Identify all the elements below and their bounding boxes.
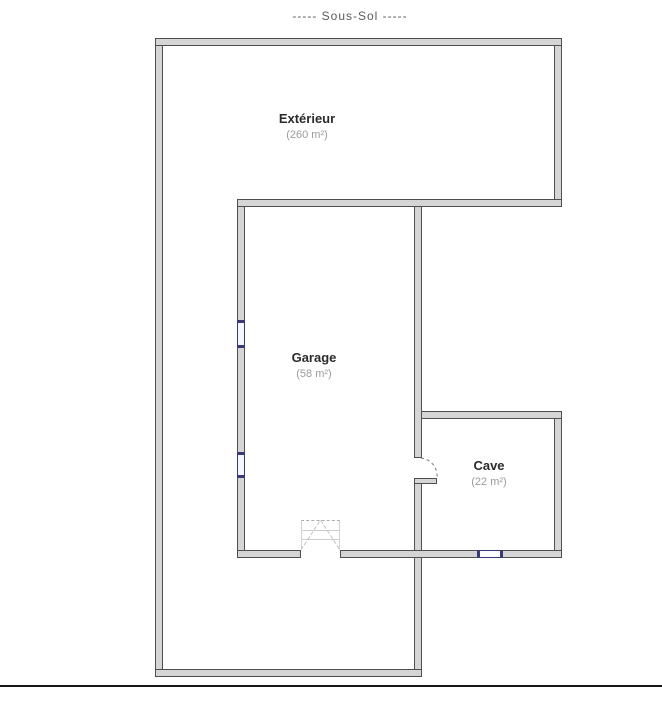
cave-wall-right [554, 411, 562, 558]
room-name-exterieur: Extérieur [247, 112, 367, 127]
room-area-garage: (58 m²) [254, 368, 374, 380]
garage-window-upper [237, 320, 245, 348]
cave-top-wall [421, 411, 562, 419]
garage-wall-right-lower [414, 481, 422, 677]
outer-wall-top [155, 38, 562, 46]
room-area-cave: (22 m²) [429, 476, 549, 488]
room-name-garage: Garage [254, 351, 374, 366]
cave-window [477, 550, 503, 558]
room-label-cave: Cave (22 m²) [429, 459, 549, 488]
room-name-cave: Cave [429, 459, 549, 474]
garage-bottom-wall-left [237, 550, 301, 558]
garage-wall-left [237, 199, 245, 558]
outer-wall-left [155, 38, 163, 677]
room-label-garage: Garage (58 m²) [254, 351, 374, 380]
floor-plan: ----- Sous-Sol ----- Extérieur (260 m²) … [0, 0, 662, 723]
room-label-exterieur: Extérieur (260 m²) [247, 112, 367, 141]
garage-top-wall [237, 199, 562, 207]
outer-wall-right-upper [554, 38, 562, 207]
outer-wall-bottom [155, 669, 422, 677]
plan-title: ----- Sous-Sol ----- [38, 9, 662, 23]
bottom-separator-line [0, 685, 662, 687]
garage-cave-bottom-wall [340, 550, 562, 558]
garage-door-swing-lines [301, 520, 340, 550]
garage-window-lower [237, 452, 245, 478]
garage-wall-right-upper [414, 205, 422, 458]
room-area-exterieur: (260 m²) [247, 129, 367, 141]
